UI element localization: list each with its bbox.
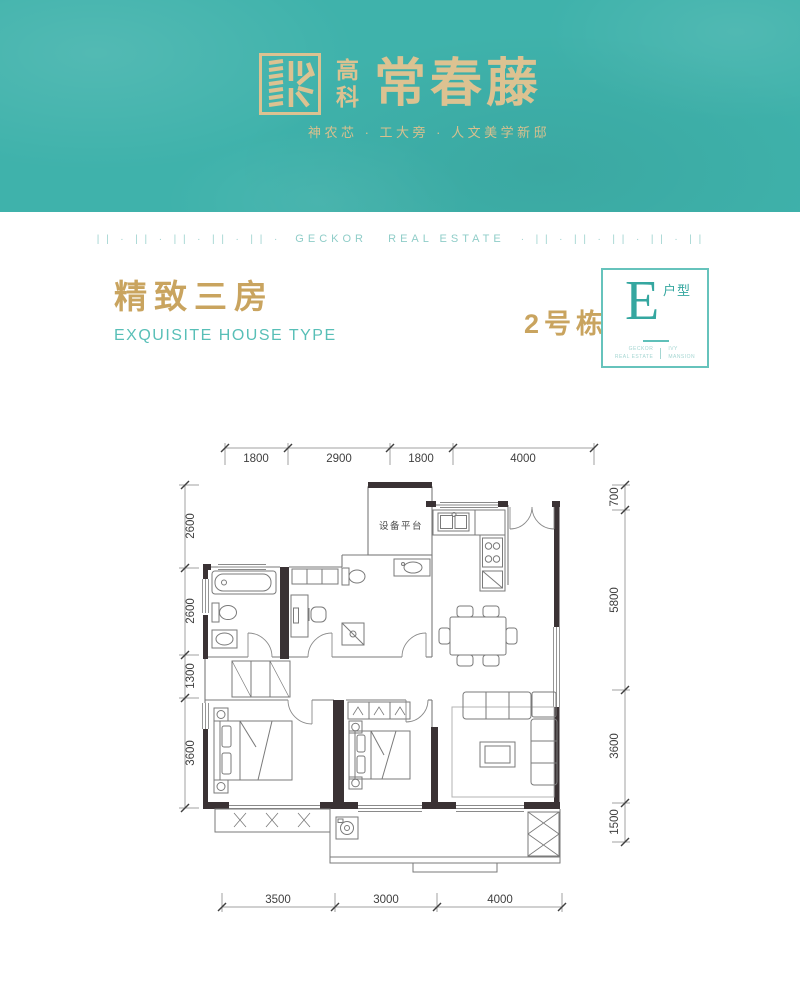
dim-top-3: 1800 [408,453,434,465]
unit-type-label: 户型 [663,280,691,299]
kitchen-cabinet [483,571,503,588]
floor-plan: 1800 2900 1800 4000 3500 3000 4000 2600 … [170,425,630,925]
badge-footer: GECKOR REAL ESTATE IVY MANSION [603,346,707,361]
stove [483,538,503,567]
title-block: 精致三房 EXQUISITE HOUSE TYPE [114,270,337,345]
dim-left-2: 2600 [185,598,197,624]
rug [452,707,554,797]
coffee-table [480,742,515,767]
dim-bottom-2: 3000 [373,894,399,906]
dim-right-3: 3600 [609,733,621,759]
balcony-glazing [528,812,559,856]
washbasin-2 [394,559,430,576]
desk [291,595,308,637]
badge-underline [643,340,669,342]
logo-prefix-text: 高科 [336,57,364,111]
bay-window [215,809,330,832]
hall-wardrobe [232,661,290,697]
brand-divider: | | · | | · | | · | | · | | · GECKOR REA… [0,233,800,245]
dim-top-2: 2900 [326,453,352,465]
dim-left-3: 1300 [185,663,197,689]
equipment-platform-label: 设备平台 [379,520,423,532]
bedroom-second [348,702,410,789]
page: 高科 常春藤 神农芯 · 工大旁 · 人文美学新邸 | | · | | · | … [0,0,800,999]
dim-left-1: 2600 [185,513,197,539]
dim-right-4: 1500 [609,809,621,835]
bed-master [214,721,292,780]
toilet [212,603,237,622]
badge-footer-left: GECKOR REAL ESTATE [615,346,653,361]
page-subtitle: EXQUISITE HOUSE TYPE [114,327,337,345]
badge-footer-left-1: GECKOR [629,346,654,354]
dim-top-1: 1800 [243,453,269,465]
divider-pattern-right: · | | · | | · | | · | | · | | [521,234,704,245]
header-banner: 高科 常春藤 神农芯 · 工大旁 · 人文美学新邸 [0,0,800,212]
logo-tagline: 神农芯 · 工大旁 · 人文美学新邸 [308,122,550,141]
dim-left-4: 3600 [185,740,197,766]
dining-set [439,606,517,666]
dining-table [450,617,506,655]
study-closet [292,569,338,584]
brand-logo: 高科 常春藤 [258,52,542,116]
bathtub [212,571,276,594]
bathroom-main [212,571,276,648]
badge-footer-right: IVY MANSION [668,346,695,361]
dim-bottom-1: 3500 [265,894,291,906]
badge-footer-separator [660,348,661,359]
nightstand [214,708,228,721]
divider-pattern-left: | | · | | · | | · | | · | | · [97,234,280,245]
study-room [291,569,338,637]
desk-chair [309,607,326,622]
sofa [463,692,557,785]
page-title: 精致三房 [114,270,337,318]
dim-top-4: 4000 [510,453,536,465]
washing-machine [336,817,358,839]
closet [348,702,410,719]
bed-second [349,731,410,779]
kitchen [433,510,505,591]
washbasin [212,630,237,648]
dim-bottom-3: 4000 [487,894,513,906]
logo-name-text: 常春藤 [374,58,542,110]
dimension-lines [179,443,630,912]
building-label: 2号栋 [524,302,608,341]
bedroom-master [214,661,292,793]
badge-footer-left-2: REAL ESTATE [615,354,653,362]
nightstand [214,780,228,793]
unit-type-badge: E 户型 GECKOR REAL ESTATE IVY MANSION [601,268,709,368]
balcony [330,809,560,872]
toilet-2 [342,568,365,585]
badge-footer-right-2: MANSION [668,354,695,362]
kitchen-side-counter [480,535,505,591]
light-walls [205,487,508,729]
brand-emblem-icon [258,52,322,116]
badge-footer-right-1: IVY [668,346,678,354]
dim-right-2: 5800 [609,587,621,613]
bathroom-second [342,559,430,645]
windows [201,501,561,812]
dimension-ticks [181,444,629,911]
living-room [452,692,557,797]
unit-letter: E [625,272,659,331]
shower [342,623,364,645]
kitchen-sink [438,513,469,532]
divider-label: GECKOR REAL ESTATE [295,233,504,245]
dim-right-1: 700 [609,487,621,506]
